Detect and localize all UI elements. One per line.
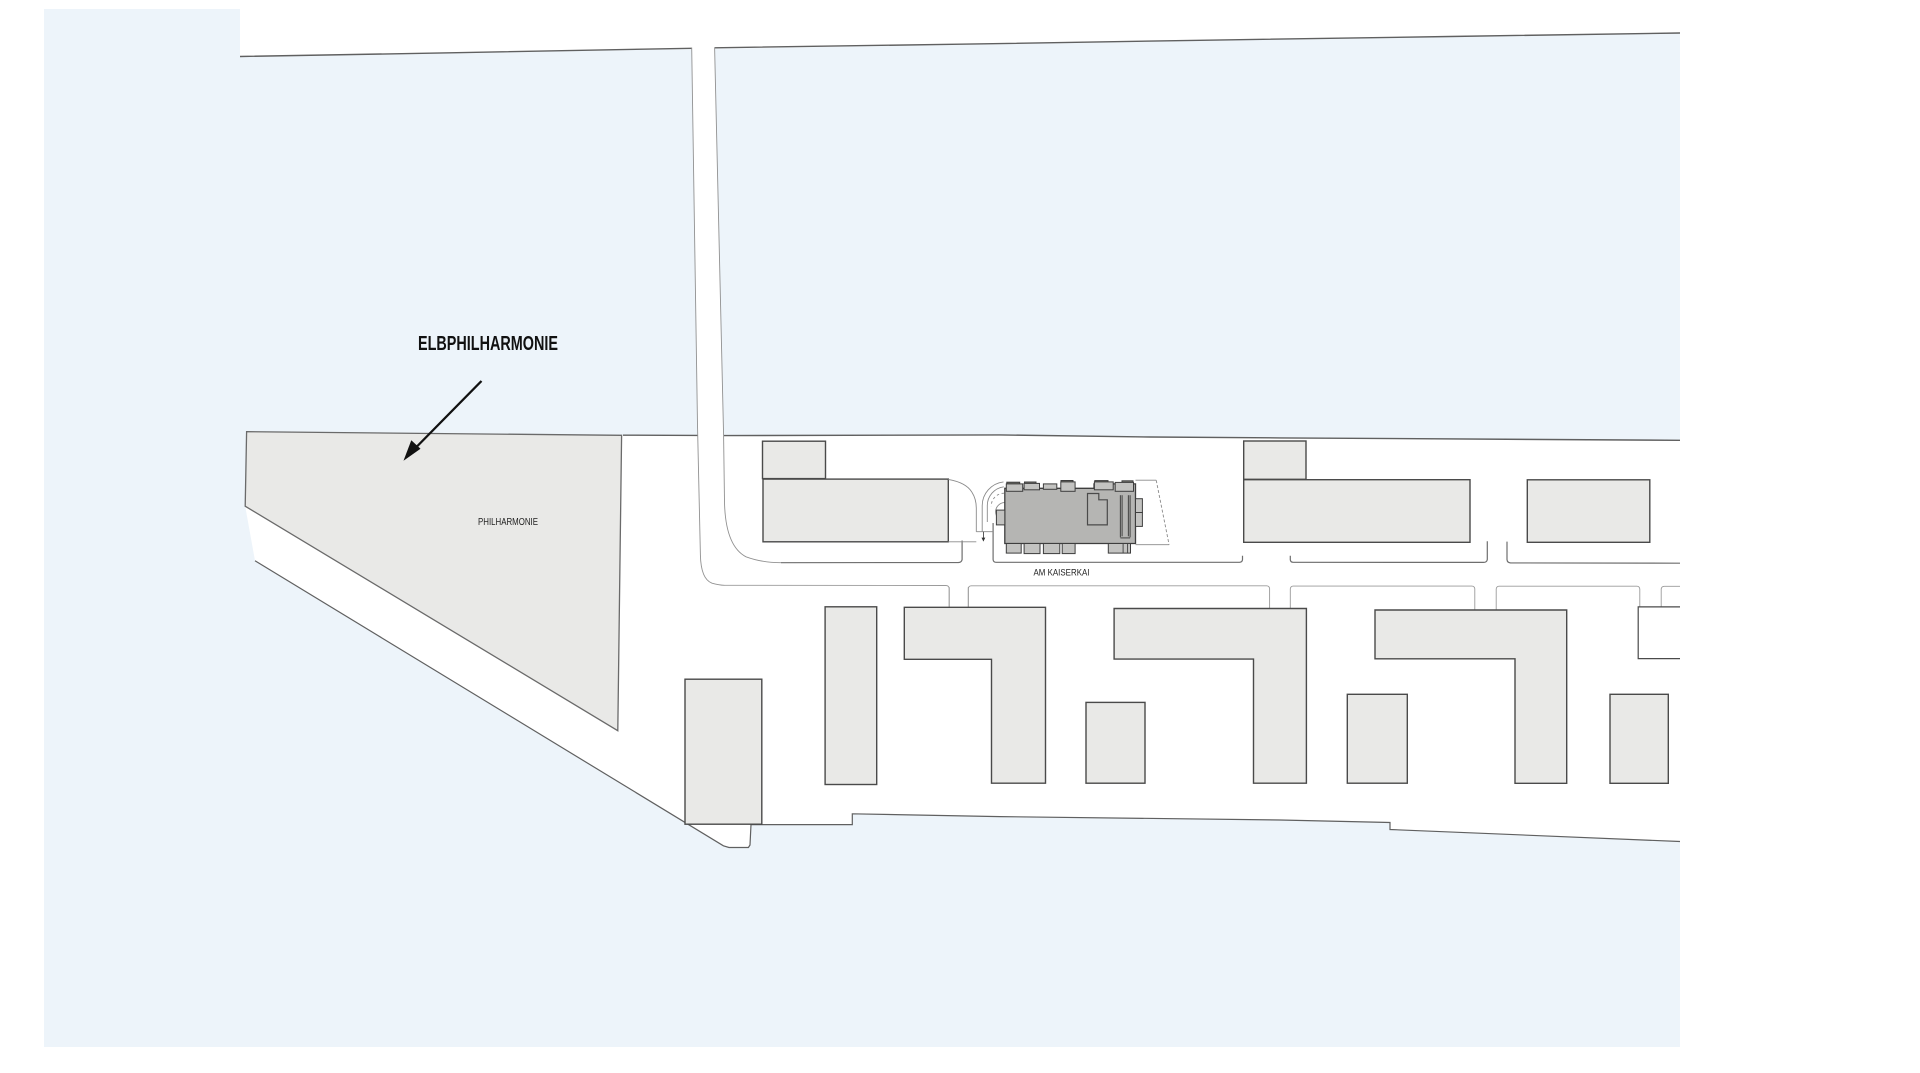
svg-text:ELBPHILHARMONIE: ELBPHILHARMONIE: [418, 333, 558, 355]
svg-text:AM KAISERKAI: AM KAISERKAI: [1034, 568, 1090, 578]
svg-text:PHILHARMONIE: PHILHARMONIE: [478, 517, 538, 528]
